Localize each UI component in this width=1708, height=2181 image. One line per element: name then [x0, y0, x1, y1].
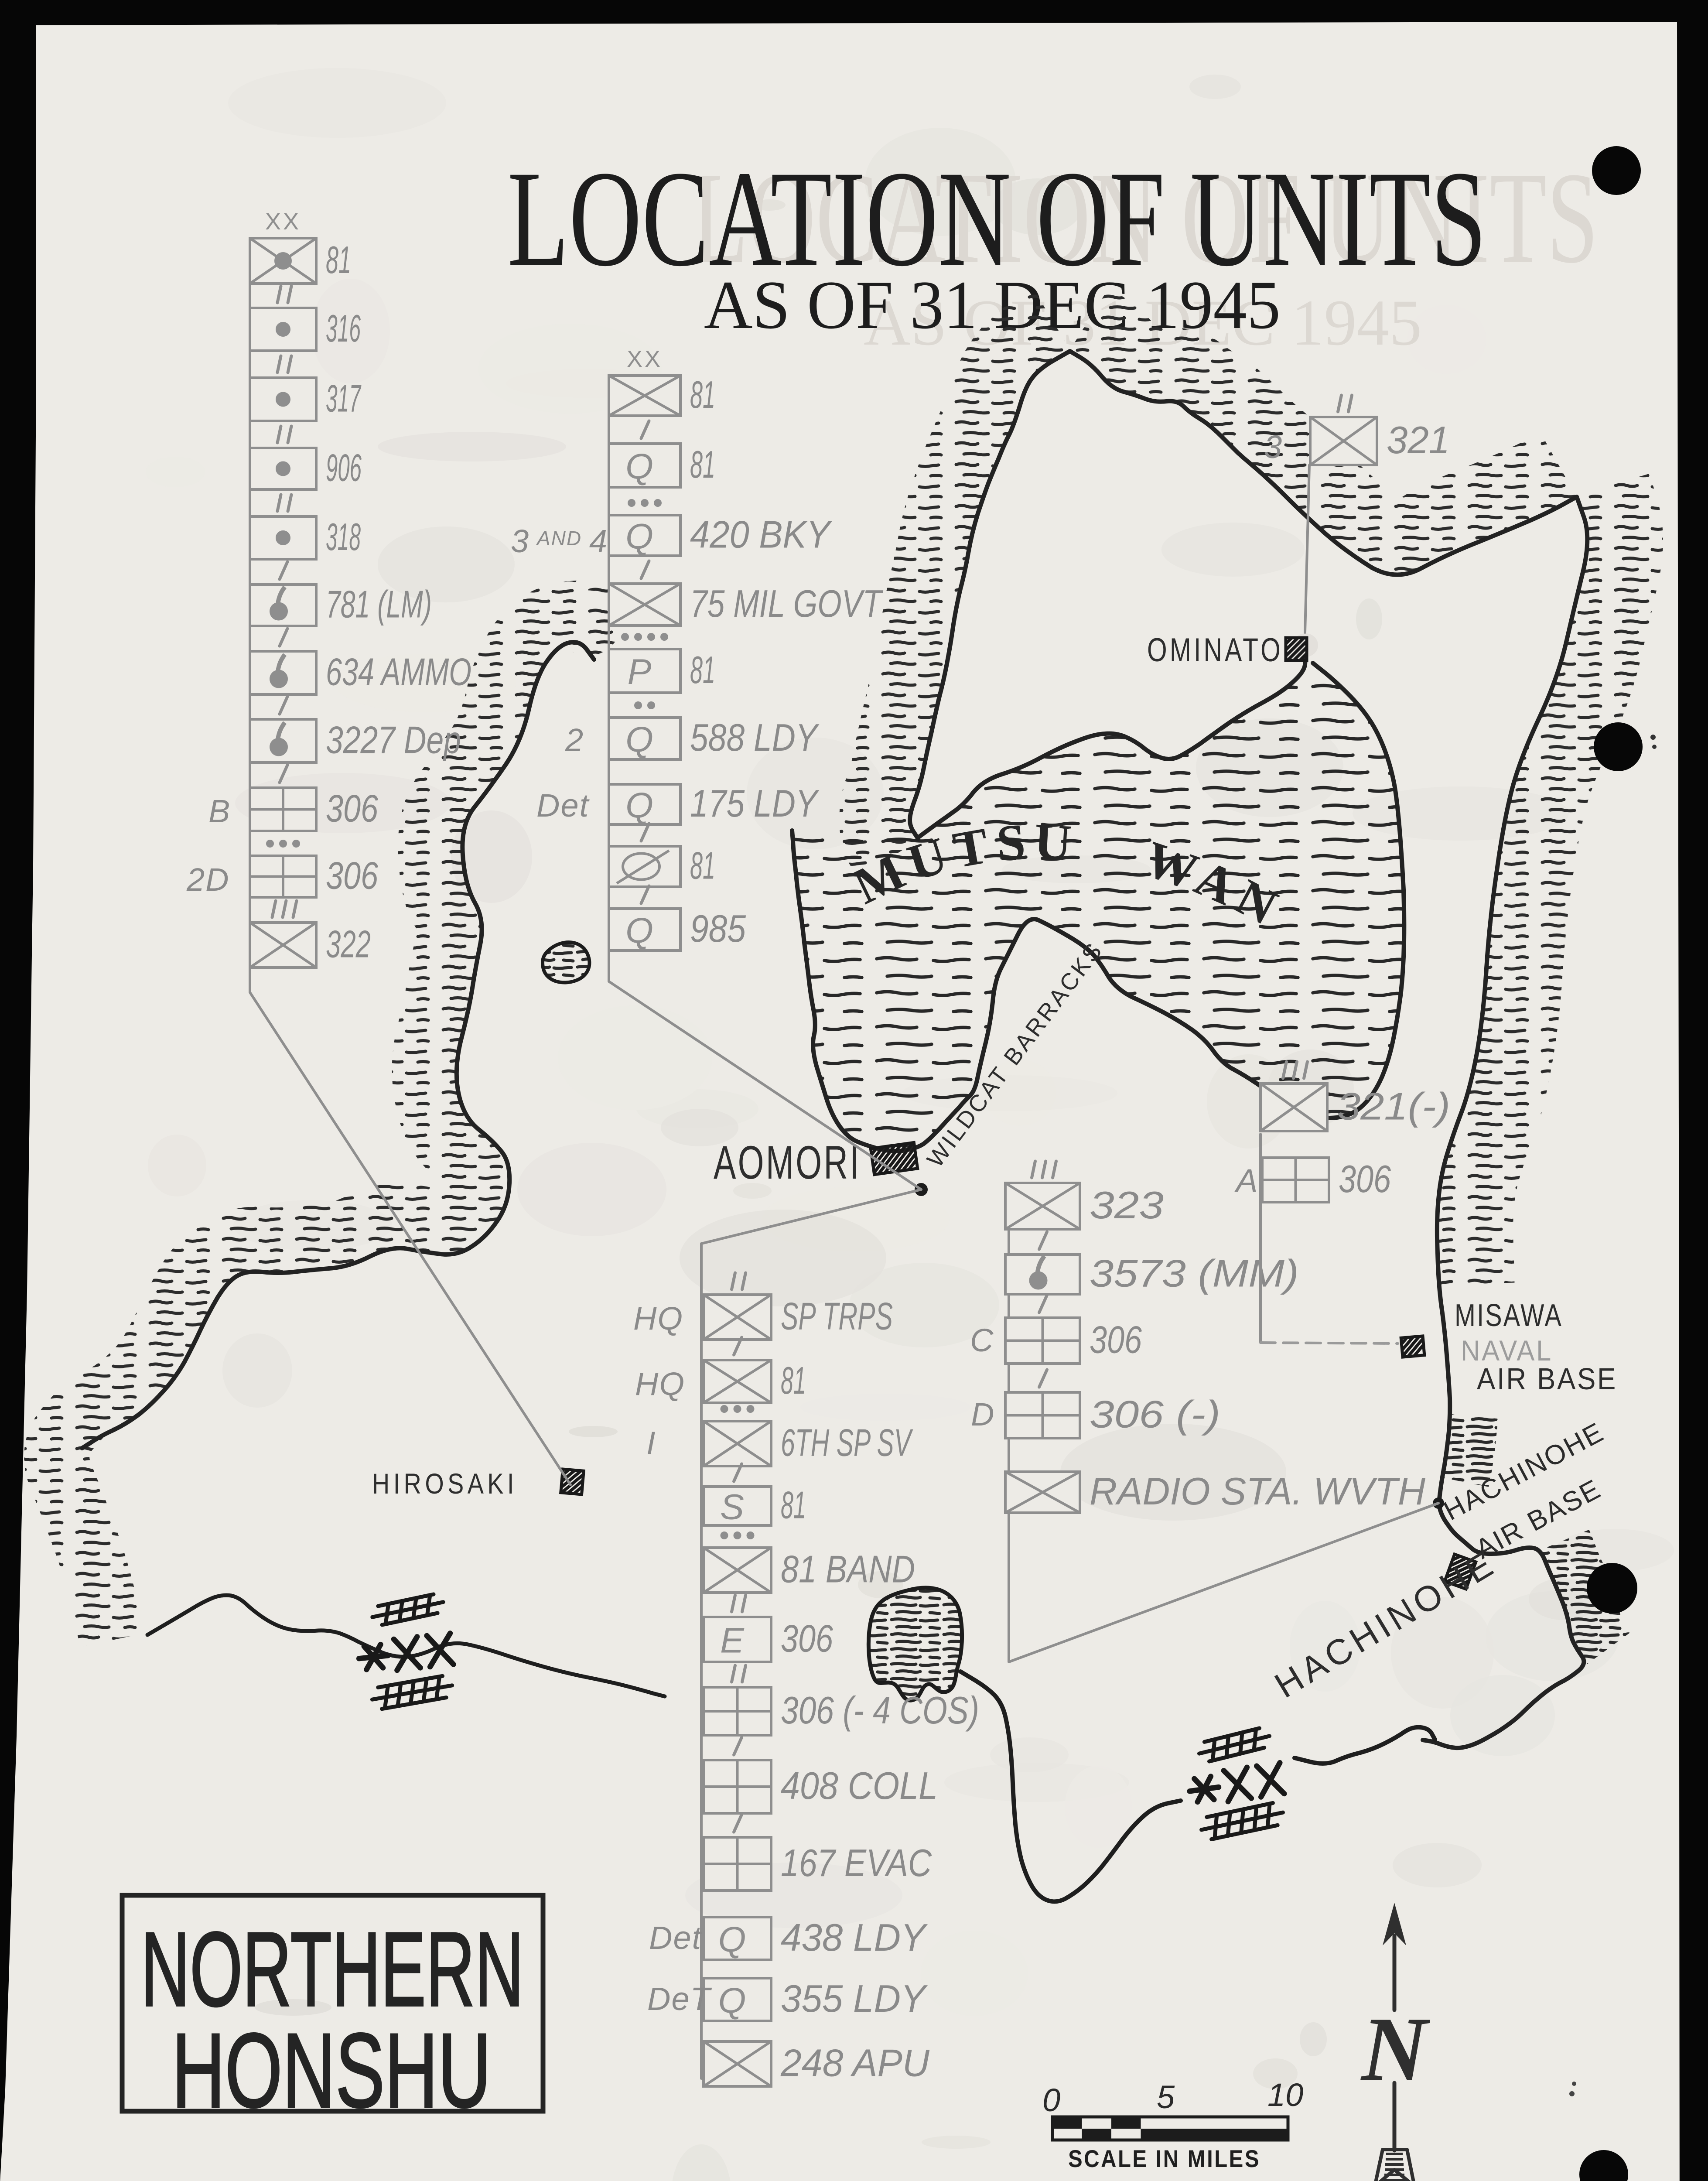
svg-text:0: 0: [1042, 2082, 1060, 2118]
svg-text:10: 10: [1267, 2077, 1303, 2113]
svg-text:XX: XX: [627, 346, 663, 372]
svg-text:781 (LM): 781 (LM): [326, 583, 432, 626]
svg-text:322: 322: [326, 923, 371, 966]
svg-text:306: 306: [1339, 1157, 1391, 1200]
svg-text:HIROSAKI: HIROSAKI: [372, 1467, 518, 1500]
svg-text:AIR BASE: AIR BASE: [1477, 1362, 1617, 1396]
svg-text:3: 3: [1264, 429, 1283, 465]
svg-text:NORTHERN: NORTHERN: [141, 1911, 524, 2028]
svg-text:Q: Q: [625, 517, 653, 557]
svg-text:6TH SP SV: 6TH SP SV: [781, 1421, 913, 1464]
svg-text:D: D: [971, 1396, 995, 1432]
svg-text:81: 81: [326, 238, 351, 281]
svg-text:81: 81: [781, 1484, 806, 1527]
svg-text:MISAWA: MISAWA: [1455, 1298, 1563, 1333]
svg-text:Det: Det: [649, 1920, 703, 1956]
svg-text:81: 81: [690, 373, 715, 416]
svg-text:438 LDY: 438 LDY: [781, 1916, 928, 1959]
svg-text:HONSHU: HONSHU: [172, 2012, 491, 2130]
svg-text:323: 323: [1090, 1183, 1164, 1227]
svg-text:985: 985: [690, 907, 746, 950]
svg-text:RADIO STA. WVTH: RADIO STA. WVTH: [1090, 1470, 1425, 1513]
svg-text:3573 (MM): 3573 (MM): [1090, 1252, 1299, 1295]
svg-text:HQ: HQ: [635, 1366, 685, 1402]
svg-text:81: 81: [690, 648, 715, 691]
svg-text:XX: XX: [265, 209, 301, 235]
svg-text:321: 321: [1387, 418, 1450, 461]
svg-text:Q: Q: [625, 720, 653, 759]
svg-text:306 (- 4 COS): 306 (- 4 COS): [781, 1689, 979, 1732]
svg-text:420 BKY: 420 BKY: [690, 513, 832, 556]
svg-text:3227 Dep: 3227 Dep: [326, 718, 461, 762]
svg-text:248 APU: 248 APU: [780, 2041, 929, 2085]
svg-text:355 LDY: 355 LDY: [781, 1977, 928, 2020]
svg-text:Q: Q: [718, 1981, 746, 2020]
svg-text:588 LDY: 588 LDY: [690, 716, 820, 759]
svg-text:318: 318: [326, 515, 361, 558]
svg-text:P: P: [628, 652, 652, 692]
svg-text:SCALE IN MILES: SCALE IN MILES: [1068, 2145, 1261, 2172]
svg-text:81 BAND: 81 BAND: [781, 1548, 915, 1591]
svg-text:2D: 2D: [186, 861, 230, 898]
svg-text:B: B: [208, 793, 231, 829]
svg-text:306: 306: [781, 1617, 833, 1660]
svg-text:AOMORI: AOMORI: [714, 1136, 861, 1189]
svg-text:SP TRPS: SP TRPS: [781, 1295, 893, 1338]
svg-text:167 EVAC: 167 EVAC: [781, 1841, 932, 1884]
svg-text:175 LDY: 175 LDY: [690, 782, 820, 825]
svg-text:306: 306: [326, 787, 378, 830]
svg-text:A: A: [1234, 1162, 1258, 1199]
svg-text:Q: Q: [625, 786, 653, 825]
svg-text:OMINATO: OMINATO: [1147, 632, 1283, 669]
svg-text:Q: Q: [718, 1920, 746, 1959]
svg-text:306: 306: [1090, 1318, 1142, 1361]
svg-text:2: 2: [565, 722, 584, 758]
svg-text:HQ: HQ: [633, 1300, 683, 1337]
svg-text:I: I: [646, 1425, 656, 1461]
svg-text:321(-): 321(-): [1337, 1085, 1450, 1128]
svg-text:306: 306: [326, 854, 378, 897]
svg-text:Det: Det: [536, 787, 590, 824]
svg-text:75 MIL GOVT: 75 MIL GOVT: [690, 582, 883, 625]
svg-text:C: C: [970, 1322, 994, 1358]
svg-text:N: N: [1360, 1999, 1430, 2100]
svg-text:81: 81: [781, 1359, 806, 1402]
svg-text:316: 316: [326, 307, 361, 350]
svg-text:DeT: DeT: [647, 1981, 712, 2017]
svg-text:634 AMMO: 634 AMMO: [326, 650, 471, 694]
svg-text:408 COLL: 408 COLL: [781, 1764, 938, 1807]
svg-text:81: 81: [690, 844, 715, 887]
svg-text:E: E: [720, 1621, 745, 1661]
svg-text:81: 81: [690, 443, 715, 486]
svg-text:S: S: [720, 1487, 744, 1527]
svg-text:Q: Q: [625, 911, 653, 950]
svg-text:317: 317: [326, 377, 362, 420]
svg-text:906: 906: [326, 446, 362, 489]
svg-text:5: 5: [1157, 2079, 1175, 2115]
svg-text:306 (-): 306 (-): [1090, 1393, 1220, 1436]
svg-text:Q: Q: [625, 447, 653, 486]
